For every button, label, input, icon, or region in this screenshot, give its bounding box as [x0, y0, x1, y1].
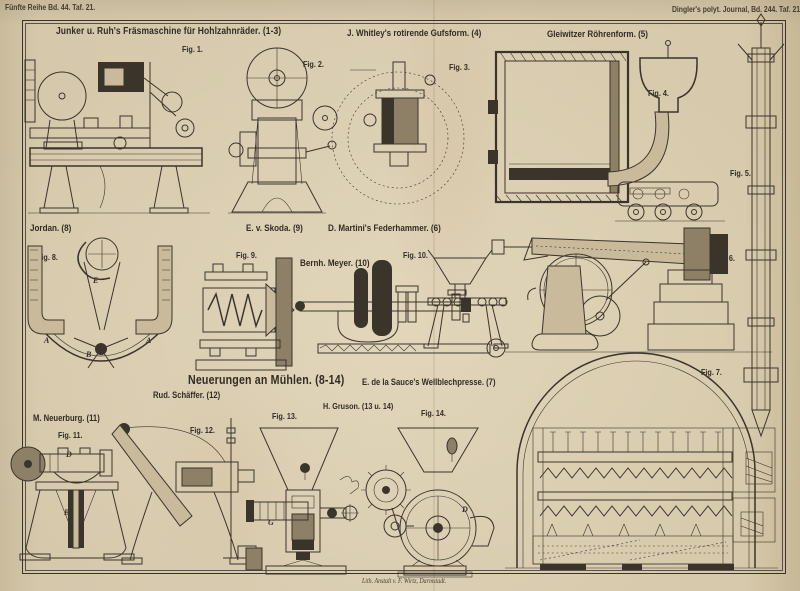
fig1-fraesmaschine-side-drawing — [25, 60, 210, 213]
fig14-gruson-disc-drawing — [361, 428, 494, 577]
fig10-meyer-roller-train-drawing — [295, 260, 505, 357]
fig5-core-bar-drawing — [738, 14, 784, 436]
fig13-gruson-vertical-drawing — [246, 428, 359, 574]
fig2-fraesmaschine-front-drawing — [228, 48, 337, 213]
fig12-schaeffer-drawing — [112, 418, 256, 564]
plate-drawings — [0, 0, 800, 591]
fig6-federhammer-drawing — [492, 228, 772, 352]
fig4-gleiwitz-roehrenform-drawing — [488, 41, 725, 222]
fig9-skoda-screw-drawing — [196, 258, 294, 370]
fig7-wellblechpresse-drawing — [505, 353, 778, 570]
fig3-rotating-mould-drawing — [332, 62, 464, 204]
fig8-jordan-mill-drawing — [28, 238, 172, 368]
engraving-plate-page: Fünfte Reihe Bd. 44. Taf. 21. Dingler's … — [0, 0, 800, 591]
fig10-hopper-drawing — [424, 250, 508, 348]
fig11-neuerburg-drawing — [11, 447, 134, 560]
